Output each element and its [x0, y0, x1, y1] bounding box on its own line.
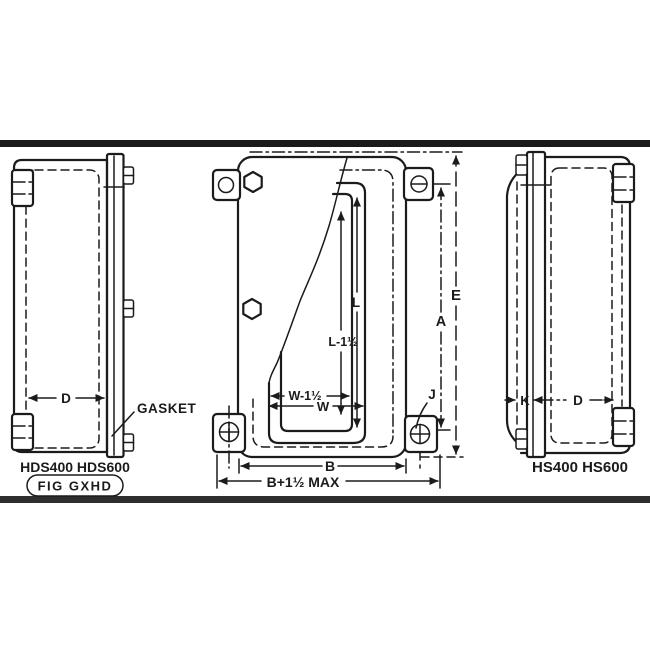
dim-e: E	[421, 156, 463, 457]
enclosure-drawing-page: D GASKET HDS400 HDS600 FIG GXHD	[0, 0, 650, 650]
break-line	[269, 158, 347, 383]
door-slab	[527, 152, 545, 457]
scan-border-top	[0, 140, 650, 147]
door-clamps	[124, 167, 134, 451]
dim-b-max-label: B+1½ MAX	[267, 474, 340, 490]
dim-b-label: B	[325, 458, 335, 474]
dim-k-label: K	[520, 393, 530, 408]
dim-l-label: L	[352, 295, 360, 310]
hinge-blocks	[12, 170, 33, 450]
gasket-label: GASKET	[137, 401, 197, 416]
technical-drawing: D GASKET HDS400 HDS600 FIG GXHD	[0, 0, 650, 650]
dim-d-label: D	[573, 393, 583, 408]
dim-w: W	[269, 399, 363, 414]
door-slab	[107, 154, 124, 457]
dim-j-label: J	[428, 387, 436, 402]
hex-bolt-icon	[244, 172, 261, 192]
figure-label: FIG GXHD	[38, 479, 113, 494]
dim-w-minus: W-1½	[271, 389, 349, 403]
dim-l: L	[352, 198, 360, 427]
dim-b: B	[239, 458, 406, 474]
scan-border-bottom	[0, 496, 650, 503]
model-label-hs: HS400 HS600	[532, 459, 628, 476]
mounting-tabs	[213, 168, 437, 468]
hinge-icon	[12, 414, 33, 450]
dim-l-minus-label: L-1½	[328, 335, 357, 349]
right-side-view: K D HS400 HS600	[505, 152, 634, 476]
front-view: L L-1½ W-1½ W B	[213, 152, 463, 490]
hinge-icon	[613, 164, 634, 202]
mounting-tab-top-left	[213, 170, 240, 200]
hidden-door-outline	[26, 170, 99, 448]
dim-d-label: D	[61, 391, 71, 406]
left-side-view: D GASKET HDS400 HDS600 FIG GXHD	[12, 154, 197, 496]
hinge-icon	[12, 170, 33, 206]
dim-d-left: D	[29, 391, 104, 406]
hex-bolt-icon	[243, 299, 260, 319]
dim-l-minus: L-1½	[328, 212, 357, 414]
dim-a-label: A	[436, 314, 447, 330]
hex-bolts	[243, 172, 261, 319]
dim-w-label: W	[317, 399, 330, 414]
dim-e-label: E	[451, 287, 461, 304]
gasket-callout: GASKET	[112, 401, 197, 436]
model-label-hds: HDS400 HDS600	[20, 459, 130, 475]
hinge-icon	[613, 408, 634, 446]
